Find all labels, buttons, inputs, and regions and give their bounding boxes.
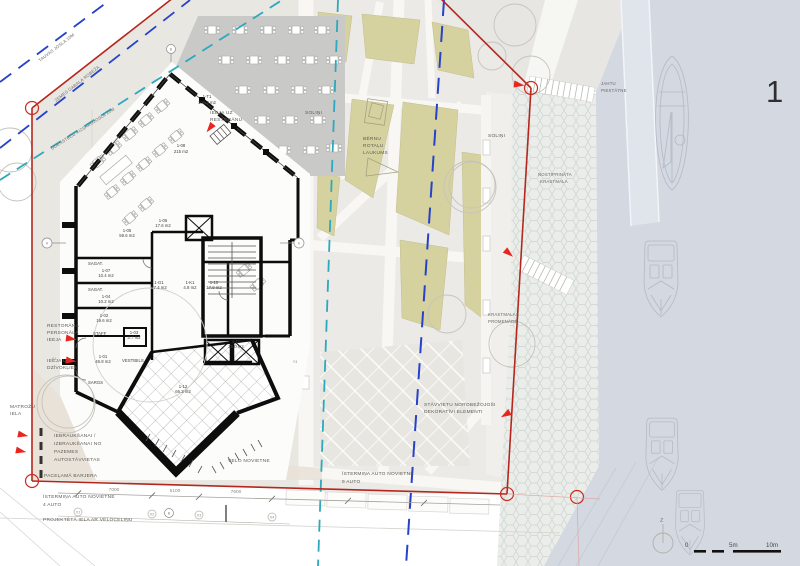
garage-out-arrow-icon: [15, 447, 27, 456]
room-102-area: 19.6 m2: [96, 318, 112, 323]
staff-label: STAFF: [93, 331, 107, 336]
grid-x4: X4: [270, 516, 274, 520]
room-104-area: 10.2 m2: [98, 299, 114, 304]
dimension-7600: 7600: [231, 489, 242, 495]
grid-x2: X2: [150, 513, 154, 517]
promenade-label-2: PROMENĀDE: [488, 319, 518, 324]
sargs-label: SARGS: [88, 380, 103, 385]
apartments-entrance-label-2: DZĪVOKĻIEM: [47, 364, 79, 371]
garage-in-arrow-icon: [17, 431, 29, 440]
garage-label-4: AUTOSTĀVVIETAS: [54, 456, 100, 463]
playground-label-2: ROTAĻU: [363, 143, 384, 149]
barrier-label: PACEĻAMĀ BARJERA: [44, 472, 98, 479]
garage-label-1: IEBRAUKŠANAI /: [54, 432, 96, 439]
apartments-entrance-label-1: IEEJA UZ: [47, 358, 70, 364]
sheet-number: 1: [766, 74, 783, 109]
terrace-room-area: 109.2 m2: [198, 100, 217, 105]
parking4-label-2: 4 AUTO: [43, 502, 61, 508]
vestibils-label: VESTIBILS: [122, 358, 144, 363]
room-1g1-area: 27.4 m2: [151, 285, 167, 290]
grid-x3: X3: [197, 514, 201, 518]
scale-ten: 10m: [766, 542, 778, 549]
bike-parking-label: VELO NOVIETNE: [228, 458, 270, 464]
room-111-area: 25.0 m2: [228, 344, 244, 349]
terrace-room-id: 1-T1: [203, 94, 212, 99]
grid-x1: X1: [76, 511, 80, 515]
yacht-pier-label-2: PIESTĀTNE: [601, 88, 627, 93]
restaurant-room-area: 215 m2: [174, 149, 189, 154]
grid-y3: Y3: [293, 360, 297, 364]
tauvas-josla-label: TAUVAS JOSLA 10M: [38, 32, 76, 63]
staff-entrance-label-2: PERSONĀLA: [47, 329, 79, 336]
room-101-area: 46.8 m2: [95, 359, 111, 364]
sagat-label-1: SAGAT.: [88, 261, 103, 266]
room-103-area: 3.7 m2: [127, 335, 141, 340]
parking-elements-label-2: DEKORATĪVI ELEMENTI: [424, 408, 483, 415]
scale-zero: 0: [685, 542, 689, 549]
parking4-label-1: ĪSTERMIŅA AUTO NOVIETNE: [43, 493, 115, 500]
room-106-area: 17.6 m2: [155, 223, 171, 228]
benches-right-label: SOLIŅI: [488, 133, 505, 139]
room-107-area: 10.4 m2: [98, 273, 114, 278]
restaurant-room-id: 1-08: [177, 143, 186, 148]
dimension-5100: 5100: [170, 488, 181, 494]
street-name-label-2: IELA: [10, 411, 22, 417]
playground-label-1: BĒRNU: [363, 135, 381, 142]
staff-entrance-label-1: RESTORĀNA: [47, 322, 80, 329]
restaurant-entrance-label-1: IEEJA UZ: [210, 110, 233, 116]
room-105-area: 59.6 m2: [119, 233, 135, 238]
staff-entrance-label-3: IEEJA: [47, 337, 62, 343]
playground-label-3: LAUKUMS: [363, 150, 388, 156]
benches-left-label: SOLIŅI: [305, 110, 322, 116]
embankment-label-1: NOSTIPRINĀTA: [538, 172, 572, 177]
site-plan-sheet: Z 0 5m 10m TAUVAS JOSLA 10M ZEMES GABALA…: [0, 0, 800, 566]
grid-y1: Y1: [52, 357, 56, 361]
dimension-7000: 7000: [109, 487, 120, 493]
site-plan-canvas: Z 0 5m 10m TAUVAS JOSLA 10M ZEMES GABALA…: [0, 0, 800, 566]
garage-label-3: PAZEMES: [54, 449, 78, 455]
sagat-label-2: SAGAT.: [88, 287, 103, 292]
room-112-area: 66.3 m2: [175, 389, 191, 394]
embankment-label-2: KRASTMALA: [540, 179, 568, 184]
scale-five: 5m: [729, 542, 738, 549]
projected-street-label: PROJEKTĒTĀ IELA AR VELOCELIŅU: [43, 516, 133, 523]
yacht-pier-label-1: JAHTU: [601, 81, 616, 86]
restaurant-entrance-label-2: RESTORĀNU: [210, 116, 243, 123]
garage-label-2: IZBRAUKŠANAI NO: [54, 440, 101, 447]
room-1k1-area: 4.8 m2: [183, 285, 197, 290]
room-110-area: 17.9 m2: [206, 285, 222, 290]
parking9-label-2: 9 AUTO: [342, 479, 360, 485]
parking9-label-1: ĪSTERMIŅA AUTO NOVIETNE: [342, 470, 414, 477]
promenade-label-1: KRASTMALAS: [488, 312, 519, 317]
